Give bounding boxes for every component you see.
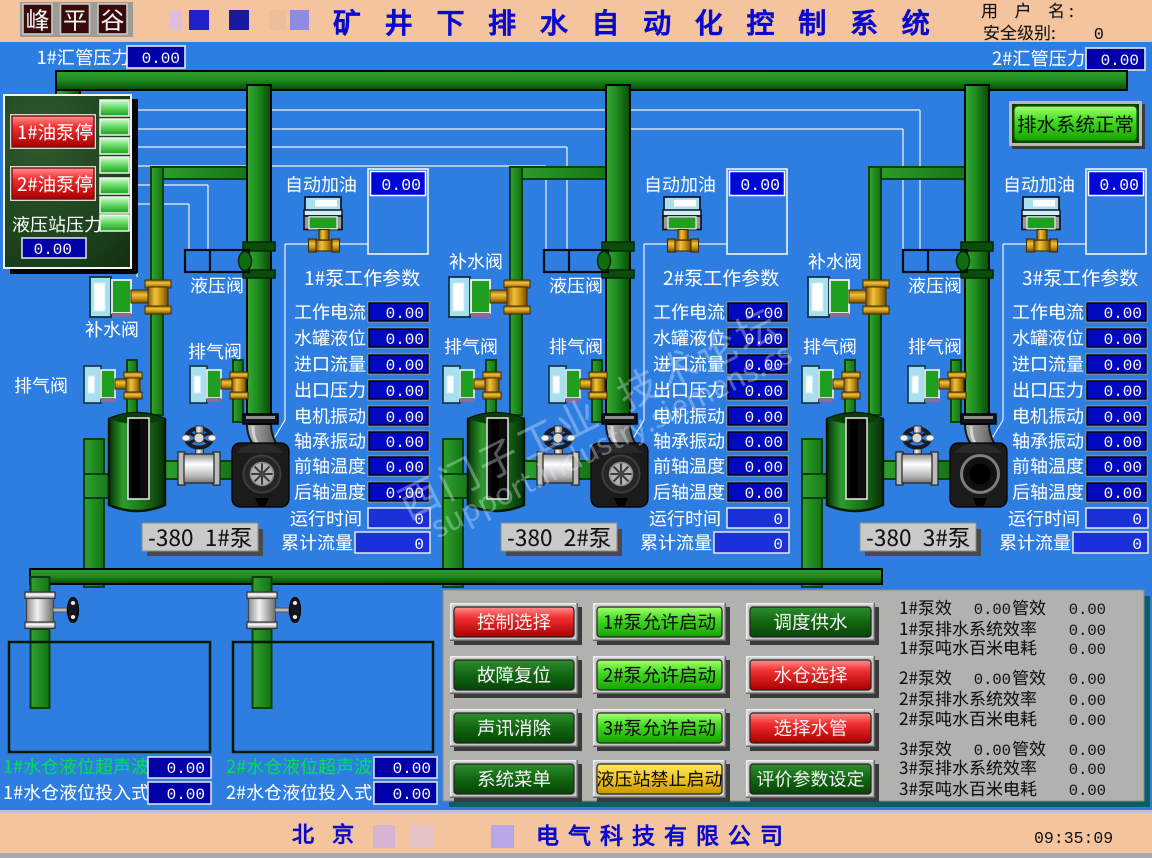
svg-text:09:35:09: 09:35:09 <box>1034 829 1113 848</box>
svg-text:0.00: 0.00 <box>1104 459 1142 477</box>
svg-text:0.00: 0.00 <box>1069 761 1106 779</box>
svg-text:0.00: 0.00 <box>1104 331 1142 349</box>
svg-text:0.00: 0.00 <box>745 434 783 452</box>
svg-text:0.00: 0.00 <box>740 176 780 195</box>
svg-text:0.00: 0.00 <box>386 409 424 427</box>
svg-text:0.00: 0.00 <box>974 601 1011 619</box>
svg-text:0.00: 0.00 <box>386 434 424 452</box>
svg-text:0: 0 <box>1094 26 1104 45</box>
svg-text:0.00: 0.00 <box>386 383 424 401</box>
svg-text:0.00: 0.00 <box>34 241 72 259</box>
svg-text:0: 0 <box>414 536 424 554</box>
svg-text:0.00: 0.00 <box>1101 52 1139 70</box>
svg-text:0.00: 0.00 <box>1069 742 1106 760</box>
svg-text:0.00: 0.00 <box>745 409 783 427</box>
svg-text:0.00: 0.00 <box>167 760 205 778</box>
svg-text:0.00: 0.00 <box>1104 357 1142 375</box>
svg-text:0: 0 <box>1132 536 1142 554</box>
svg-text:0.00: 0.00 <box>381 176 421 195</box>
svg-text:0.00: 0.00 <box>1069 622 1106 640</box>
svg-text:0.00: 0.00 <box>745 305 783 323</box>
svg-text:0: 0 <box>773 511 783 529</box>
svg-text:0.00: 0.00 <box>393 786 431 804</box>
svg-text:0.00: 0.00 <box>167 786 205 804</box>
svg-text:0.00: 0.00 <box>386 331 424 349</box>
svg-text:0.00: 0.00 <box>1069 712 1106 730</box>
svg-text:0.00: 0.00 <box>1104 485 1142 503</box>
svg-text:0.00: 0.00 <box>1104 434 1142 452</box>
svg-text:0.00: 0.00 <box>1104 409 1142 427</box>
svg-text:0: 0 <box>773 536 783 554</box>
svg-text:0.00: 0.00 <box>1069 671 1106 689</box>
svg-text:0.00: 0.00 <box>745 383 783 401</box>
svg-text:0.00: 0.00 <box>745 459 783 477</box>
svg-text:0.00: 0.00 <box>142 50 180 68</box>
svg-text:0.00: 0.00 <box>386 459 424 477</box>
svg-text:0.00: 0.00 <box>1104 383 1142 401</box>
svg-text:0.00: 0.00 <box>1099 176 1139 195</box>
svg-text:0.00: 0.00 <box>1104 305 1142 323</box>
svg-text:0.00: 0.00 <box>745 485 783 503</box>
svg-text:0.00: 0.00 <box>393 760 431 778</box>
svg-text:0.00: 0.00 <box>974 671 1011 689</box>
svg-text:0.00: 0.00 <box>1069 601 1106 619</box>
svg-text:0.00: 0.00 <box>1069 782 1106 800</box>
svg-text:0: 0 <box>1132 511 1142 529</box>
svg-text:0.00: 0.00 <box>1069 692 1106 710</box>
svg-text:0.00: 0.00 <box>386 305 424 323</box>
svg-text:0.00: 0.00 <box>386 357 424 375</box>
svg-text:0.00: 0.00 <box>974 742 1011 760</box>
svg-text:0.00: 0.00 <box>1069 641 1106 659</box>
